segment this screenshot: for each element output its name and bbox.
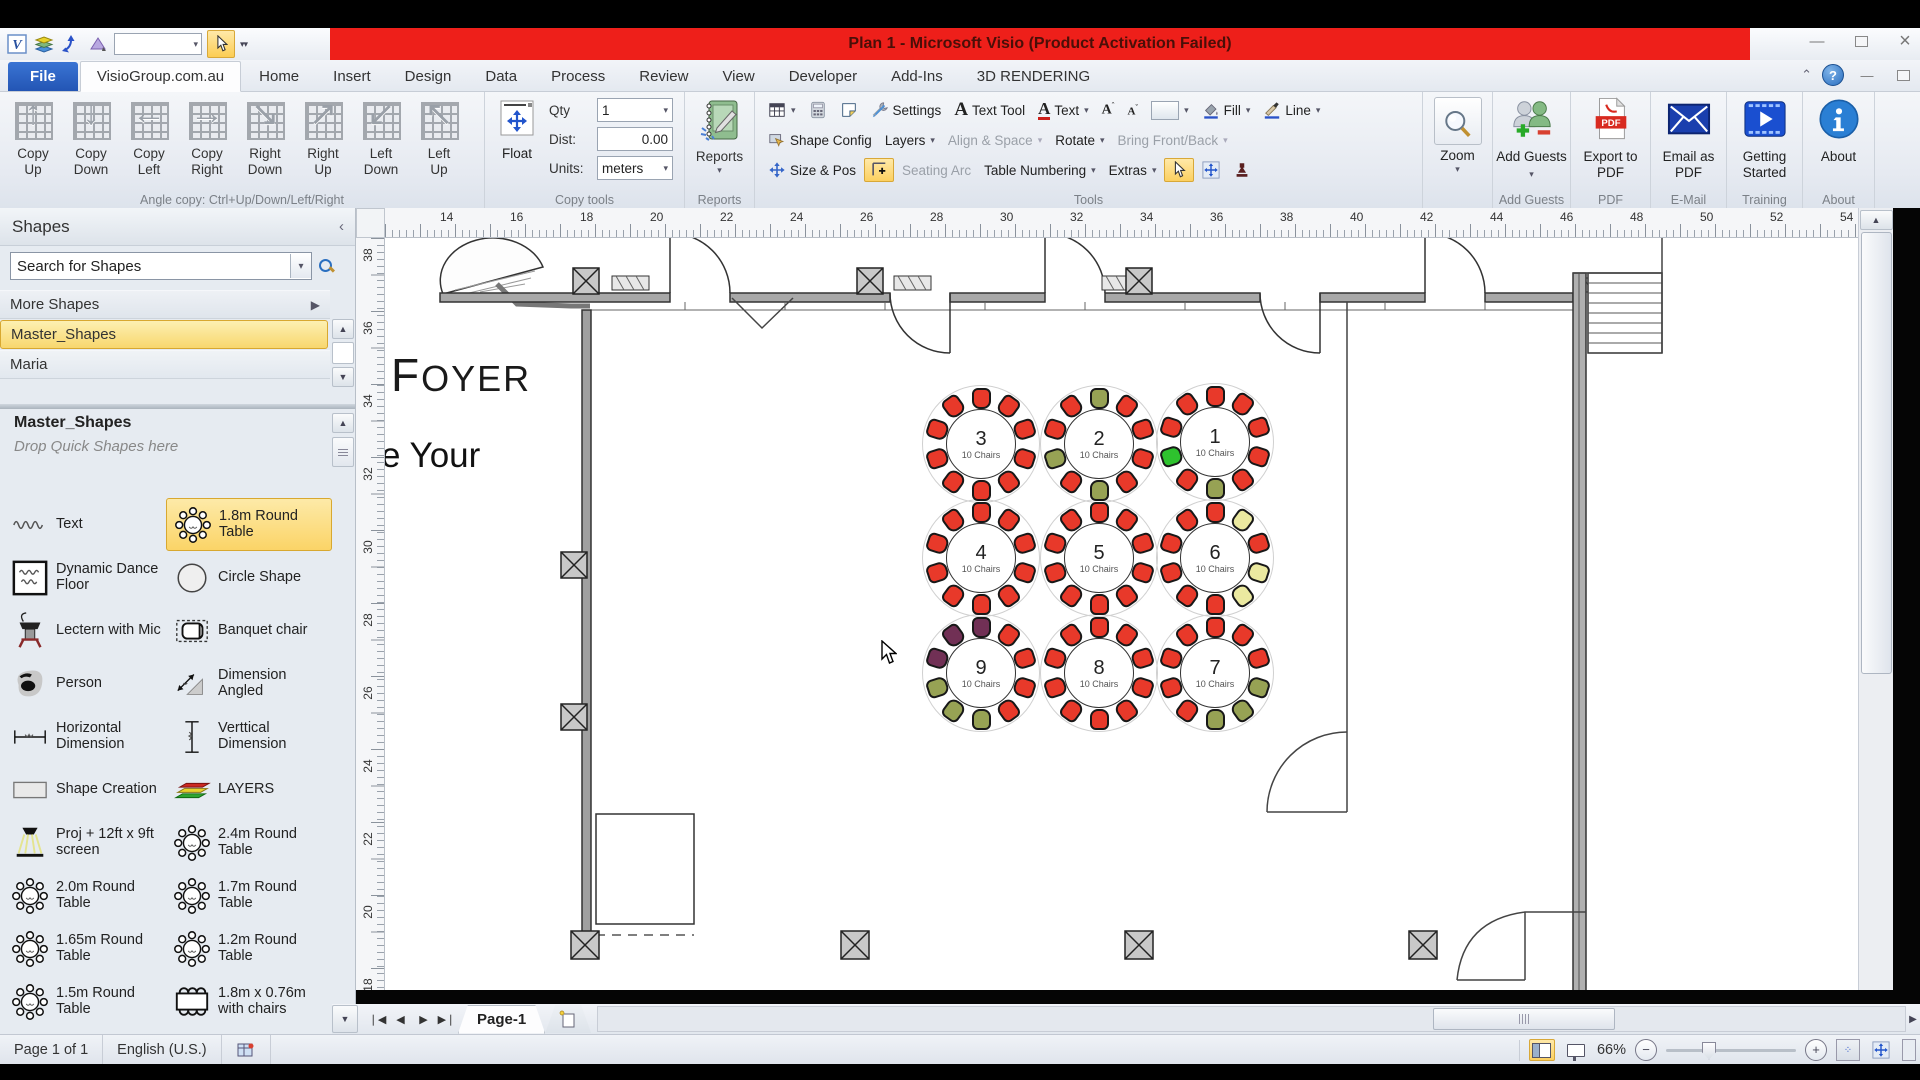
round-table-7[interactable]: 710 Chairs [1156,614,1274,732]
line-icon [1263,101,1281,119]
switch-windows-button[interactable] [1902,1039,1916,1061]
grow-font-button[interactable]: Aˆ [1097,99,1120,121]
shapes-scroll-thumb[interactable] [332,437,354,467]
canvas-edge [356,990,1893,1004]
vertical-ruler: 3836343230282624222018 [356,238,385,990]
table-top: 110 Chairs [1180,407,1250,477]
text-color-button[interactable]: AText▾ [1033,98,1094,122]
calculator-icon [809,101,827,119]
grid-arrow-icon: ← [127,98,171,144]
shape-item-lectern-with-mic[interactable]: Lectern with Mic [4,604,166,657]
size-pos-icon [768,161,786,179]
ribbon-group-add-guests: Add Guests ▾ Add Guests [1493,92,1571,208]
add-guests-button[interactable]: Add Guests ▾ [1493,92,1570,180]
layers-dropdown[interactable]: Layers▾ [880,131,940,150]
grid-arrow-icon: ↗ [301,98,345,144]
chair-purple[interactable] [972,617,991,638]
table-top: 510 Chairs [1064,523,1134,593]
table-number: 2 [1093,429,1104,449]
mouse-cursor [879,640,897,666]
shape-item-2-4m-round-table[interactable]: 2.4m Round Table [166,816,332,869]
table-seats-label: 10 Chairs [1080,679,1119,689]
shapes-panel: Shapes ‹ ▾ More Shapes▶ Master_Shapes Ma… [0,208,356,1034]
page-tab[interactable]: Page-1 [458,1005,545,1034]
group-label-about: About [1803,193,1874,207]
shape-item-text[interactable]: Text [4,498,166,551]
more-shapes-row[interactable]: More Shapes▶ [0,290,330,319]
grid-arrow-icon: ↓ [69,98,113,144]
ribbon-group-reports: Reports ▾ Reports [685,92,755,208]
round-table-2[interactable]: 210 Chairs [1040,385,1158,503]
foyer-label: FOYER [391,348,531,402]
chair-red[interactable] [1130,446,1156,471]
shape-item-verttical-dimension[interactable]: Verttical Dimension [166,710,332,763]
layers-icon [172,770,212,810]
shape-item-1-2m-round-table[interactable]: 1.2m Round Table [166,922,332,975]
zoom-slider-thumb[interactable] [1702,1042,1716,1060]
macro-icon [236,1042,256,1058]
h-dim-icon [10,717,50,757]
ribbon: ↑CopyUp↓CopyDown←CopyLeft→CopyRight↘Righ… [0,92,1920,209]
scroll-right-arrow[interactable]: ▶ [1906,1007,1920,1031]
zoom-slider[interactable] [1666,1049,1796,1052]
tab-design[interactable]: Design [389,62,468,91]
shapes-panel-title: Shapes [12,217,70,237]
search-shapes-box: ▾ [10,252,312,280]
table-number: 3 [975,429,986,449]
reports-button[interactable]: Reports ▾ [687,94,753,176]
shapes-scroll-down[interactable]: ▼ [332,1005,358,1033]
layers-quick-icon[interactable] [33,33,55,55]
tab-developer[interactable]: Developer [773,62,873,91]
copy-right-button[interactable]: →CopyRight [178,94,236,177]
connector-quick-icon[interactable] [60,33,82,55]
rotate-dropdown[interactable]: Rotate▾ [1050,131,1109,150]
qty-label: Qty [549,103,597,118]
chair-olive[interactable] [1090,480,1109,501]
grid-arrow-icon: ↖ [417,98,461,144]
horizontal-scrollbar[interactable] [597,1006,1906,1032]
bring-front-back-dropdown[interactable]: Bring Front/Back▾ [1113,131,1233,150]
round-table-icon [172,876,212,916]
ribbon-group-email: Email as PDF E-Mail [1651,92,1727,208]
table-report-dropdown[interactable]: ▾ [763,99,801,121]
table-seats-label: 10 Chairs [1080,564,1119,574]
dim-angled-icon [172,664,212,704]
page-navigation-bar: ▼ ❘◀ ◀ ▶ ▶❘ Page-1 ▶ [332,1004,1920,1034]
reports-icon [698,98,742,147]
search-icon[interactable] [318,258,334,274]
first-page-button[interactable]: ❘◀ [366,1007,389,1031]
zoom-icon [1440,103,1476,139]
ribbon-group-about: About About [1803,92,1875,208]
round-table-icon [10,876,50,916]
round-table-5[interactable]: 510 Chairs [1040,499,1158,617]
add-guests-icon [1510,97,1554,146]
shrink-font-button[interactable]: Aˇ [1122,101,1143,120]
seating-arc-label-button[interactable]: Seating Arc [897,161,976,180]
copy-up-button[interactable]: ↑CopyUp [4,94,62,177]
shapes-list: Text1.8m Round TableDynamic Dance FloorC… [4,498,332,1028]
stencil-list-scroll-down[interactable]: ▼ [332,367,354,387]
seating-arc-icon [870,161,888,179]
grid-arrow-icon: ↑ [11,98,55,144]
about-button[interactable]: About [1803,92,1874,165]
shape-item-1-8m-round-table[interactable]: 1.8m Round Table [166,498,332,551]
round-table-icon [173,505,213,545]
shape-style-dropdown[interactable]: ▾ [1146,99,1194,122]
email-as-pdf-button[interactable]: Email as PDF [1651,92,1726,180]
lectern-icon [10,611,50,651]
zoom-button[interactable]: Zoom ▾ [1423,92,1492,175]
restore-window-button[interactable] [1848,32,1874,50]
right-down-button[interactable]: ↘RightDown [236,94,294,177]
zoom-in-button[interactable]: + [1805,1039,1827,1061]
ribbon-group-copy-tools: Float Qty 1▾ Dist: 0.00 Units: meters▾ C… [485,92,685,208]
table-numbering-dropdown[interactable]: Table Numbering▾ [979,161,1101,180]
chair-red[interactable] [1090,502,1109,523]
tab-file[interactable]: File [8,62,78,91]
chair-olive[interactable] [1090,388,1109,409]
float-icon [497,98,537,143]
tab-process[interactable]: Process [535,62,621,91]
horizontal-ruler: 1416182022242628303234363840424446485052… [385,208,1858,238]
ribbon-group-zoom: Zoom ▾ [1423,92,1493,208]
left-up-button[interactable]: ↖LeftUp [410,94,468,177]
chair-red[interactable] [1246,444,1272,469]
banquet-chair-icon [172,611,212,651]
table-seats-label: 10 Chairs [962,679,1001,689]
new-page-icon [558,1010,578,1028]
note-icon [840,101,858,119]
visio-app-icon[interactable]: V [6,33,28,55]
table-seats-label: 10 Chairs [962,450,1001,460]
chair-olive[interactable] [1206,709,1225,730]
grid-arrow-icon: ↘ [243,98,287,144]
drawing-canvas[interactable]: FOYER e Your 310 Chairs210 Chairs110 Cha… [385,238,1858,990]
tab-home[interactable]: Home [243,62,315,91]
shape-item-1-8m-x-0-76m-with-chairs[interactable]: 1.8m x 0.76m with chairs [166,975,332,1028]
round-table-icon [172,823,212,863]
chair-red[interactable] [1090,617,1109,638]
minimize-document-button[interactable]: — [1854,66,1880,84]
table-top: 810 Chairs [1064,638,1134,708]
stencil-list-scroll-up[interactable]: ▲ [332,319,354,339]
help-icon[interactable]: ? [1822,64,1844,86]
language-status[interactable]: English (U.S.) [103,1035,221,1065]
chair-red[interactable] [972,388,991,409]
shape-creation-icon [10,770,50,810]
macro-status-button[interactable] [222,1035,271,1065]
vertical-scrollbar[interactable]: ▲ [1858,208,1893,990]
settings-icon [871,101,889,119]
settings-button[interactable]: Settings [866,99,947,121]
getting-started-icon [1743,97,1787,146]
group-label-tools: Tools [755,193,1422,207]
units-label: Units: [549,161,597,176]
table-seats-label: 10 Chairs [962,564,1001,574]
shape-item-layers[interactable]: LAYERS [166,763,332,816]
shape-item-horizontal-dimension[interactable]: Horizontal Dimension [4,710,166,763]
pan-tool-button[interactable] [1197,159,1225,181]
table-seats-label: 10 Chairs [1080,450,1119,460]
presentation-mode-button[interactable] [1564,1040,1588,1060]
group-label-copy-tools: Copy tools [485,193,684,207]
table-top: 210 Chairs [1064,409,1134,479]
ruler-corner [356,208,385,238]
stencil-tab-maria[interactable]: Maria [0,350,330,379]
about-icon [1817,97,1861,146]
shape-item-2-0m-round-table[interactable]: 2.0m Round Table [4,869,166,922]
round-table-icon [10,982,50,1022]
title-bar: V ▾ ▾▾ Plan 1 - Microsoft Visio (Product… [0,28,1920,60]
round-table-1[interactable]: 110 Chairs [1156,383,1274,501]
group-label-add-guests: Add Guests [1493,193,1570,207]
circle-shape-icon [172,558,212,598]
stamp-tool-button[interactable] [1228,159,1256,181]
table-top: 410 Chairs [946,523,1016,593]
shape-item-banquet-chair[interactable]: Banquet chair [166,604,332,657]
chair-red[interactable] [1090,709,1109,730]
pan-icon [1202,161,1220,179]
dist-label: Dist: [549,132,597,147]
group-label-training: Training [1727,193,1802,207]
shape-item-shape-creation[interactable]: Shape Creation [4,763,166,816]
quick-access-toolbar: V ▾ ▾▾ [0,28,330,60]
stamp-icon [1233,161,1251,179]
shape-quick-icon[interactable] [87,33,109,55]
tab-3d-rendering[interactable]: 3D RENDERING [961,62,1106,91]
letterbox-bottom [0,1064,1920,1080]
grid-arrow-icon: → [185,98,229,144]
chair-red[interactable] [1130,675,1156,700]
shapes-scroll-up[interactable]: ▲ [332,413,354,433]
grid-arrow-icon: ↙ [359,98,403,144]
group-label-angle-copy: Angle copy: Ctrl+Up/Down/Left/Right [0,193,484,207]
round-table-9[interactable]: 910 Chairs [922,614,1040,732]
whole-page-view-button[interactable] [1529,1039,1555,1061]
scroll-up-arrow[interactable]: ▲ [1860,210,1893,230]
text-tool-button[interactable]: AText Tool [949,97,1030,123]
chair-red[interactable] [1206,502,1225,523]
getting-started-button[interactable]: Getting Started [1727,92,1802,180]
shape-style-icon [1151,101,1179,120]
vertical-scroll-thumb[interactable] [1861,232,1892,674]
round-table-3[interactable]: 310 Chairs [922,385,1040,503]
table-number: 1 [1209,427,1220,447]
shape-item-1-5m-round-table[interactable]: 1.5m Round Table [4,975,166,1028]
chair-red[interactable] [1206,386,1225,407]
window-title: Plan 1 - Microsoft Visio (Product Activa… [848,35,1231,53]
whole-page-icon [1532,1043,1551,1058]
text-tool-icon: A [954,99,968,121]
chair-yellow[interactable] [1246,560,1272,585]
table-top: 910 Chairs [946,638,1016,708]
ribbon-group-tools: ▾ Settings AText Tool AText▾ Aˆ Aˇ ▾ Fil… [755,92,1423,208]
last-page-button[interactable]: ▶❘ [435,1007,458,1031]
floor-plan [385,238,1858,990]
person-icon [10,664,50,704]
letterbox-top [0,0,1920,28]
partial-text-label: e Your [385,436,480,476]
text-color-icon: A [1038,100,1050,120]
tab-view[interactable]: View [706,62,770,91]
shape-item-dimension-angled[interactable]: Dimension Angled [166,657,332,710]
minimize-window-button[interactable]: — [1804,32,1830,50]
squiggle-icon [10,505,50,545]
qty-dropdown[interactable]: 1▾ [597,98,673,122]
copy-left-button[interactable]: ←CopyLeft [120,94,178,177]
tab-insert[interactable]: Insert [317,62,387,91]
fit-page-button[interactable]: ⁘ [1836,1039,1860,1061]
table-top: 710 Chairs [1180,638,1250,708]
round-table-6[interactable]: 610 Chairs [1156,499,1274,617]
size-pos-button[interactable]: Size & Pos [763,159,861,181]
table-top: 310 Chairs [946,409,1016,479]
chair-olive[interactable] [1206,478,1225,499]
table-top: 610 Chairs [1180,523,1250,593]
ribbon-tab-row: FileVisioGroup.com.auHomeInsertDesignDat… [0,60,1920,92]
tab-visiogroup-com-au[interactable]: VisioGroup.com.au [80,61,241,92]
table-number: 6 [1209,543,1220,563]
export-to-pdf-button[interactable]: PDF Export to PDF [1571,92,1650,180]
page-count-status[interactable]: Page 1 of 1 [0,1035,103,1065]
shape-config-button[interactable]: Shape Config [763,129,877,151]
chair-olive[interactable] [972,709,991,730]
float-button[interactable]: Float [493,96,541,180]
table-number: 7 [1209,658,1220,678]
svg-text:PDF: PDF [1601,118,1620,129]
previous-page-button[interactable]: ◀ [389,1007,412,1031]
panel-divider[interactable] [0,404,356,409]
chair-red[interactable] [972,480,991,501]
chair-red[interactable] [972,594,991,615]
group-label-email: E-Mail [1651,193,1726,207]
search-shapes-input[interactable] [11,258,290,275]
table-number: 5 [1093,543,1104,563]
window-title-banner: Plan 1 - Microsoft Visio (Product Activa… [330,28,1750,60]
units-dropdown[interactable]: meters▾ [597,156,673,180]
horizontal-scroll-thumb[interactable] [1433,1008,1615,1030]
ribbon-group-pdf: PDF Export to PDF PDF [1571,92,1651,208]
round-table-4[interactable]: 410 Chairs [922,499,1040,617]
round-table-8[interactable]: 810 Chairs [1040,614,1158,732]
next-page-button[interactable]: ▶ [412,1007,435,1031]
right-up-button[interactable]: ↗RightUp [294,94,352,177]
chair-red[interactable] [1090,594,1109,615]
visio-application-window: V ▾ ▾▾ Plan 1 - Microsoft Visio (Product… [0,0,1920,1080]
stencil-tab-master-shapes[interactable]: Master_Shapes [0,320,328,349]
pan-zoom-icon [1872,1041,1890,1059]
table-number: 4 [975,543,986,563]
tab-add-ins[interactable]: Add-Ins [875,62,959,91]
seating-arc-tool-button[interactable] [864,158,894,182]
tab-data[interactable]: Data [469,62,533,91]
shape-item-proj-12ft-x-9ft-screen[interactable]: Proj + 12ft x 9ft screen [4,816,166,869]
align-space-dropdown[interactable]: Align & Space▾ [943,131,1047,150]
zoom-out-button[interactable]: − [1635,1039,1657,1061]
projector-icon [10,823,50,863]
table-chairs-icon [172,982,212,1022]
letterbox-right [1893,208,1920,1004]
presentation-icon [1567,1044,1585,1057]
collapse-panel-icon[interactable]: ‹ [339,218,344,235]
shape-config-icon [768,131,786,149]
chair-red[interactable] [972,502,991,523]
chair-red[interactable] [1012,675,1038,700]
table-number: 9 [975,658,986,678]
chair-red[interactable] [1012,560,1038,585]
table-icon [768,101,786,119]
line-dropdown[interactable]: Line▾ [1258,99,1325,121]
table-seats-label: 10 Chairs [1196,448,1235,458]
tab-review[interactable]: Review [623,62,704,91]
shape-item-person[interactable]: Person [4,657,166,710]
pointer-tool-button[interactable] [1164,158,1194,182]
round-table-icon [172,929,212,969]
ribbon-group-training: Getting Started Training [1727,92,1803,208]
chair-olive[interactable] [1246,675,1272,700]
email-icon [1667,97,1711,146]
calculator-button[interactable] [804,99,832,121]
group-label-reports: Reports [685,193,754,207]
restore-document-button[interactable] [1890,66,1916,84]
table-seats-label: 10 Chairs [1196,679,1235,689]
fill-dropdown[interactable]: Fill▾ [1197,99,1256,121]
left-down-button[interactable]: ↙LeftDown [352,94,410,177]
dance-floor-icon [10,558,50,598]
shape-item-1-65m-round-table[interactable]: 1.65m Round Table [4,922,166,975]
table-seats-label: 10 Chairs [1196,564,1235,574]
stencil-list-scroll-thumb[interactable] [332,342,354,364]
group-label-pdf: PDF [1571,193,1650,207]
drop-quick-shapes-hint: Drop Quick Shapes here [14,438,178,455]
qat-customize-button[interactable]: ▾▾ [240,39,247,50]
shape-item-circle-shape[interactable]: Circle Shape [166,551,332,604]
minimize-ribbon-icon[interactable]: ⌃ [1801,67,1812,83]
shape-item-1-7m-round-table[interactable]: 1.7m Round Table [166,869,332,922]
extras-dropdown[interactable]: Extras▾ [1104,161,1162,180]
close-window-button[interactable]: × [1892,32,1918,50]
search-dropdown-icon[interactable]: ▾ [290,254,311,278]
round-table-icon [10,929,50,969]
note-button[interactable] [835,99,863,121]
zoom-percentage[interactable]: 66% [1597,1042,1626,1058]
table-number: 8 [1093,658,1104,678]
pointer-icon [1170,161,1188,179]
dist-input[interactable]: 0.00 [597,127,673,151]
copy-down-button[interactable]: ↓CopyDown [62,94,120,177]
fill-icon [1202,101,1220,119]
v-dim-icon [172,717,212,757]
status-bar: Page 1 of 1 English (U.S.) 66% − + ⁘ [0,1034,1920,1065]
ribbon-group-angle-copy: ↑CopyUp↓CopyDown←CopyLeft→CopyRight↘Righ… [0,92,485,208]
stencil-header: Master_Shapes [14,414,131,432]
chair-red[interactable] [1206,617,1225,638]
chair-red[interactable] [1130,560,1156,585]
qat-combobox[interactable]: ▾ [114,33,202,55]
pan-zoom-button[interactable] [1869,1040,1893,1060]
insert-page-tab[interactable] [545,1005,591,1033]
pdf-icon: PDF [1589,97,1633,146]
chair-red[interactable] [1206,594,1225,615]
chair-red[interactable] [1012,446,1038,471]
shape-item-dynamic-dance-floor[interactable]: Dynamic Dance Floor [4,551,166,604]
pointer-tool-quick-button[interactable] [207,30,235,58]
